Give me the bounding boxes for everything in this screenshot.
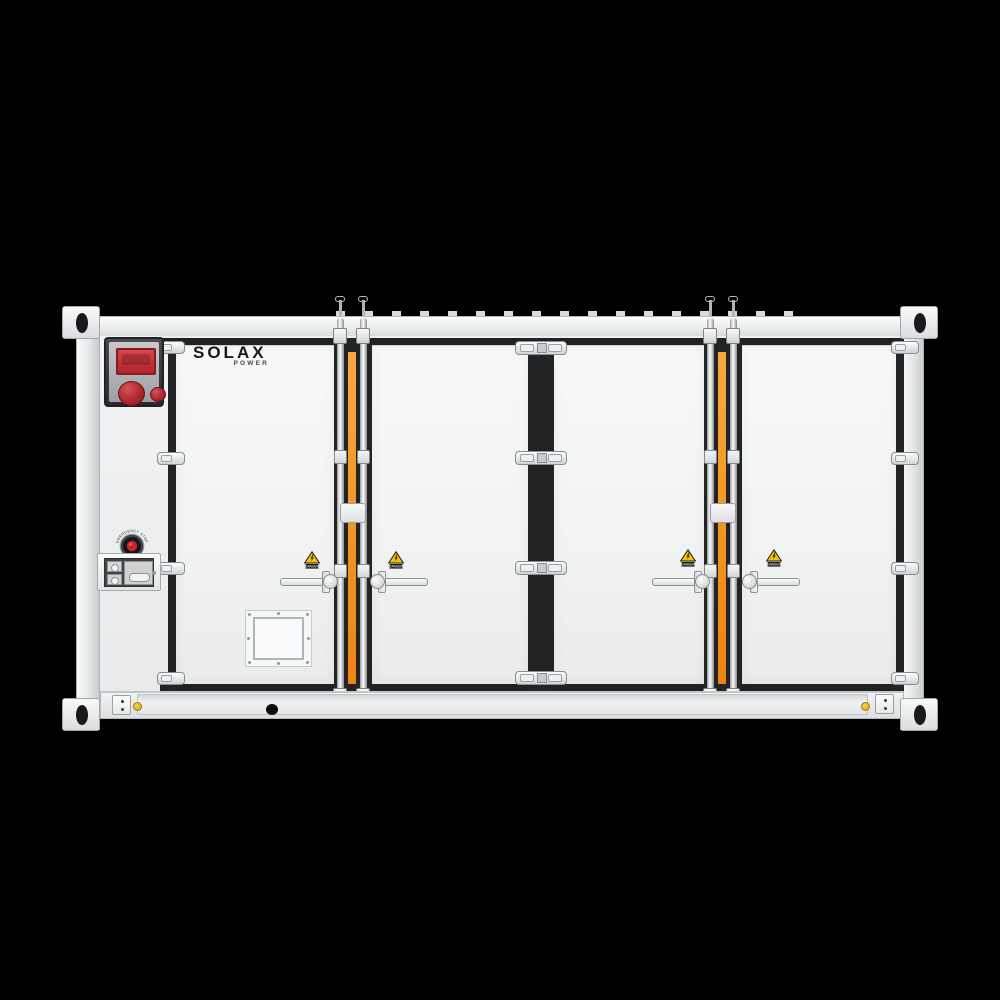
yellow-label-dot xyxy=(861,702,870,711)
socket-plate-right xyxy=(875,694,894,714)
corner-post-left xyxy=(76,310,100,730)
danger-sticker: DANGER xyxy=(680,549,696,568)
door-handle-1 xyxy=(280,571,340,593)
handle-lever xyxy=(382,578,428,586)
hinge-clamp xyxy=(891,562,919,575)
handle-lever xyxy=(754,578,800,586)
rod-keeper xyxy=(704,450,717,464)
door-handle-4 xyxy=(740,571,800,593)
switch-module xyxy=(107,574,122,585)
door-handle-3 xyxy=(652,571,712,593)
rod-keeper xyxy=(727,450,740,464)
warning-triangle-icon: DANGER xyxy=(388,551,404,570)
utility-socket-panel xyxy=(97,553,161,591)
hinge-clamp xyxy=(891,672,919,685)
bottom-sill xyxy=(137,694,868,715)
center-hinge-clamp xyxy=(515,341,567,355)
hinge-clamp xyxy=(157,562,185,575)
switch-module xyxy=(107,561,122,572)
fire-alarm-button-large xyxy=(118,381,145,406)
fire-alarm-button-small xyxy=(150,387,166,402)
door-handle-2 xyxy=(368,571,428,593)
rod-cam xyxy=(333,328,347,344)
logo-wordmark: SOLAX xyxy=(193,345,269,360)
brand-logo: SOLAX POWER xyxy=(193,345,269,367)
handle-hub xyxy=(695,574,710,589)
svg-text:DANGER: DANGER xyxy=(305,565,319,569)
fire-alarm-display xyxy=(116,348,156,375)
handle-hub xyxy=(323,574,338,589)
hinge-clamp xyxy=(891,341,919,354)
rod-keeper xyxy=(727,564,740,578)
door-edge-left xyxy=(168,338,176,692)
corner-casting-bottom-right xyxy=(900,698,938,731)
center-hinge-clamp xyxy=(515,451,567,465)
drain-hole xyxy=(266,704,278,715)
hinge-clamp xyxy=(891,452,919,465)
center-hinge-clamp xyxy=(515,671,567,685)
hinge-clamp xyxy=(157,672,185,685)
warning-triangle-icon: DANGER xyxy=(680,549,696,568)
rod-clip xyxy=(340,503,366,523)
handle-lever xyxy=(280,578,326,586)
handle-hub xyxy=(742,574,757,589)
rod-keeper xyxy=(357,450,370,464)
fire-alarm-faceplate xyxy=(109,342,159,402)
center-hinge-post xyxy=(528,338,554,692)
handle-hub xyxy=(370,574,385,589)
scene-background: SOLAX POWER xyxy=(0,0,1000,1000)
rod-keeper xyxy=(334,450,347,464)
rod-cam xyxy=(703,328,717,344)
svg-text:DANGER: DANGER xyxy=(767,563,781,567)
hinge-clamp xyxy=(157,452,185,465)
danger-sticker: DANGER xyxy=(766,549,782,568)
rod-clip xyxy=(710,503,736,523)
socket-module xyxy=(124,561,153,585)
corner-casting-top-left xyxy=(62,306,100,339)
yellow-label-dot xyxy=(133,702,142,711)
utility-panel-inset xyxy=(104,558,154,587)
door-panel-2 xyxy=(372,345,528,684)
corner-casting-bottom-left xyxy=(62,698,100,731)
warning-triangle-icon: DANGER xyxy=(304,551,320,570)
svg-text:DANGER: DANGER xyxy=(681,563,695,567)
svg-text:DANGER: DANGER xyxy=(389,565,403,569)
access-plate-inner xyxy=(253,617,304,660)
warning-triangle-icon: DANGER xyxy=(766,549,782,568)
door-panel-3 xyxy=(554,345,704,684)
corner-casting-top-right xyxy=(900,306,938,339)
rod-cam xyxy=(726,328,740,344)
handle-lever xyxy=(652,578,698,586)
emergency-stop-button xyxy=(127,541,137,551)
access-plate xyxy=(245,610,312,667)
door-panel-4 xyxy=(742,345,896,684)
socket-plate-left xyxy=(112,695,131,715)
danger-sticker: DANGER xyxy=(388,551,404,570)
rod-cam xyxy=(356,328,370,344)
danger-sticker: DANGER xyxy=(304,551,320,570)
panel-screw xyxy=(152,571,156,575)
center-hinge-clamp xyxy=(515,561,567,575)
fire-alarm-box xyxy=(104,337,164,407)
door-edge-right xyxy=(896,338,904,692)
